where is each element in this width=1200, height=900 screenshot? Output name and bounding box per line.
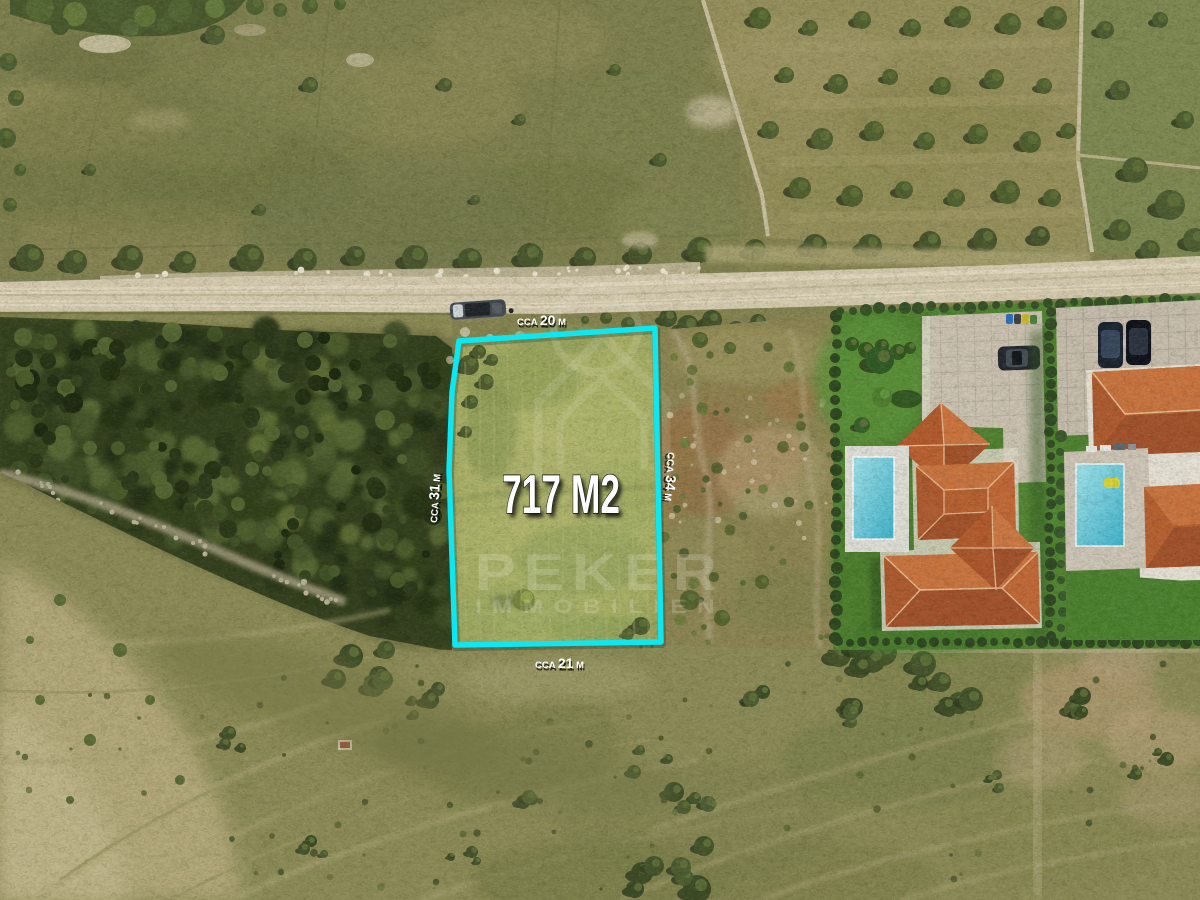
svg-text:PEKER: PEKER (475, 544, 725, 602)
svg-text:717 M2: 717 M2 (502, 463, 620, 525)
svg-text:IMMOBILIEN: IMMOBILIEN (475, 597, 725, 618)
